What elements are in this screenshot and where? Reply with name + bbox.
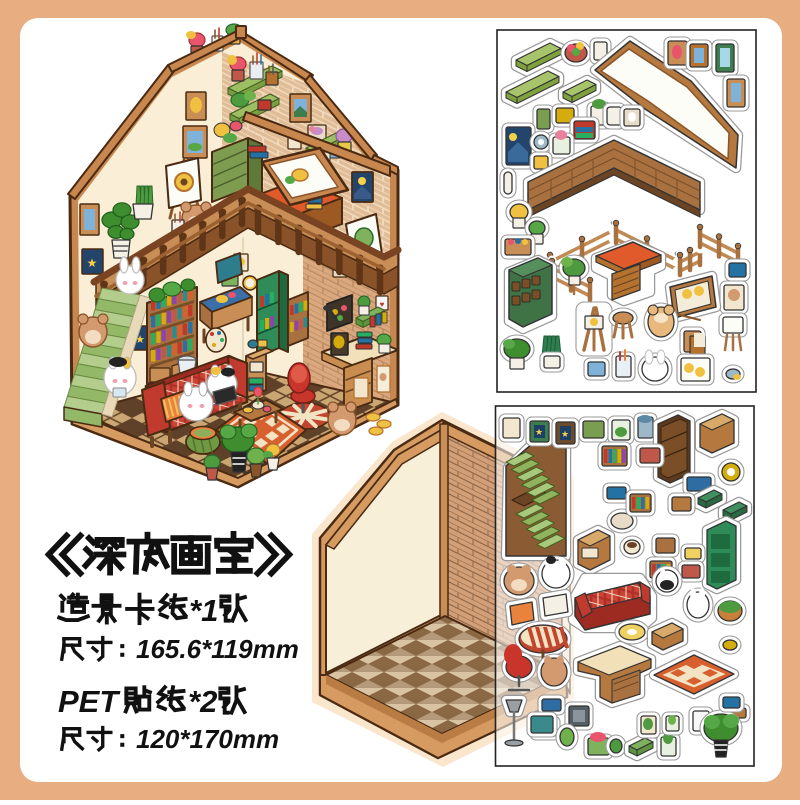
svg-text:★: ★ <box>561 429 569 439</box>
svg-text:165.6*119mm: 165.6*119mm <box>136 634 299 664</box>
svg-text:PET: PET <box>58 684 121 719</box>
svg-text:*2: *2 <box>188 684 217 719</box>
svg-text:★: ★ <box>535 427 543 437</box>
svg-text:*1: *1 <box>189 593 218 628</box>
svg-text:120*170mm: 120*170mm <box>136 724 279 754</box>
svg-text:★: ★ <box>87 256 98 270</box>
